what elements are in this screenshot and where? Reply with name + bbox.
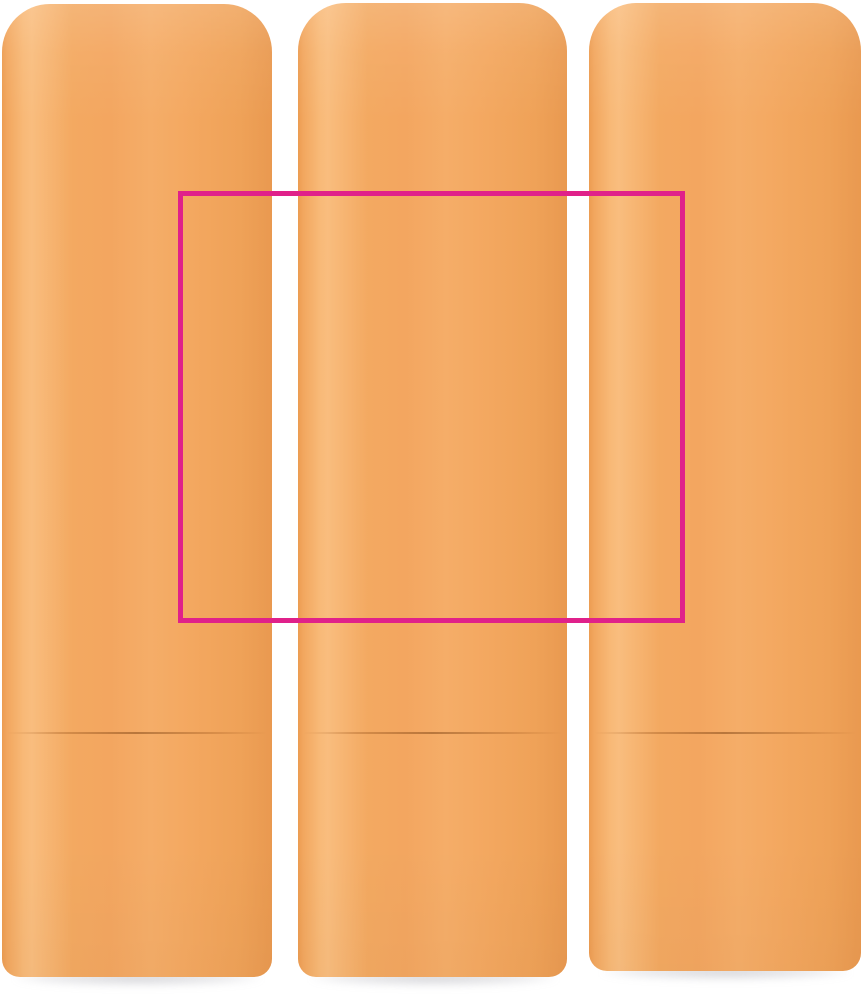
cap-base-seam xyxy=(594,732,855,734)
print-area-rectangle xyxy=(178,191,685,623)
cap-base-seam xyxy=(7,732,266,734)
cap-base-seam xyxy=(303,732,561,734)
product-photo xyxy=(0,0,865,999)
